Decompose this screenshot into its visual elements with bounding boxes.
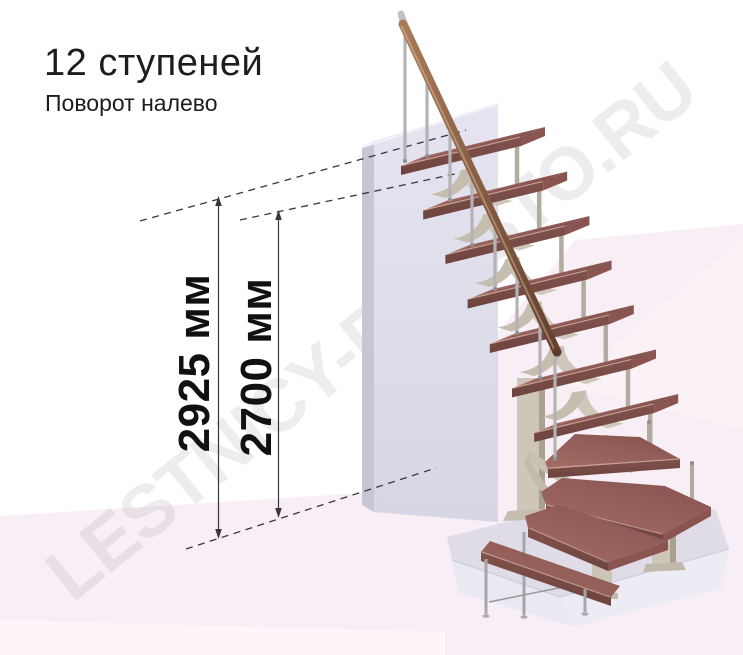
baluster-joint bbox=[470, 243, 474, 247]
baluster-joint bbox=[448, 198, 452, 202]
baluster-joint bbox=[493, 287, 497, 291]
baluster-joint bbox=[538, 376, 542, 380]
wall-front-face bbox=[374, 104, 498, 522]
baluster-joint bbox=[425, 154, 429, 158]
page-title: 12 ступеней bbox=[44, 42, 263, 85]
dimension-label-2700: 2700 мм bbox=[234, 257, 280, 477]
baluster-joint bbox=[515, 331, 519, 335]
wall-side-face bbox=[362, 141, 374, 512]
handrail-end-knob bbox=[553, 348, 562, 357]
baluster-joint bbox=[403, 159, 407, 163]
baluster-joint bbox=[553, 457, 557, 461]
page-subtitle: Поворот налево bbox=[45, 90, 218, 117]
dimension-label-2925: 2925 мм bbox=[172, 253, 218, 473]
stair-diagram: LESTNICY-PROSTO.RU bbox=[0, 0, 743, 655]
main-column bbox=[517, 378, 539, 512]
